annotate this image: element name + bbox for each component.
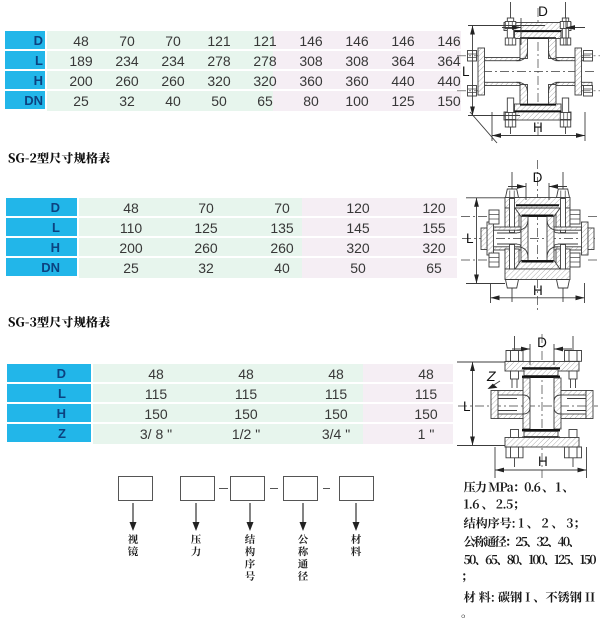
svg-text:D: D [537, 335, 547, 350]
svg-text:L: L [463, 399, 471, 414]
svg-text:Z: Z [486, 368, 496, 384]
svg-text:H: H [538, 454, 548, 469]
